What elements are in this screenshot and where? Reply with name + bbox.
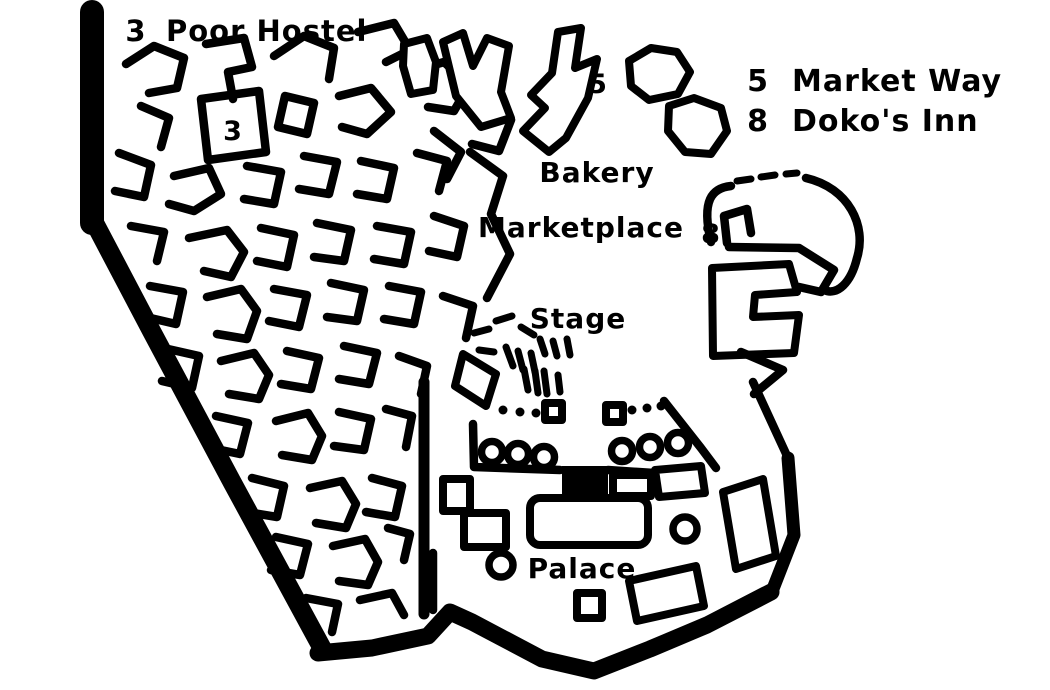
north-buildings: [403, 28, 727, 154]
maze-district: [115, 23, 511, 632]
label-marketplace: Marketplace: [478, 211, 684, 244]
palace-gate: [562, 466, 608, 495]
legend-dokos-inn: 8 Doko's Inn: [747, 104, 979, 139]
label-stage: Stage: [530, 302, 626, 335]
marker-market-way: 5: [588, 69, 608, 100]
legend-poor-hostel: 3 Poor Hostel: [125, 14, 367, 48]
palace-hall: [530, 498, 648, 545]
legend-market-way: 5 Market Way: [747, 64, 1002, 99]
marker-poor-hostel: 3: [223, 116, 243, 147]
dokos-inn-building: [707, 173, 859, 356]
legend-dokos-inn-num: 8: [747, 104, 769, 139]
city-map-canvas: 3 Poor Hostel 5 Market Way 8 Doko's Inn …: [0, 0, 1050, 690]
city-map-page: 3 Poor Hostel 5 Market Way 8 Doko's Inn …: [0, 0, 1050, 690]
label-palace: Palace: [528, 552, 637, 585]
legend-market-way-num: 5: [747, 64, 769, 99]
label-bakery: Bakery: [539, 156, 654, 189]
stage-platform: [455, 354, 496, 406]
legend-market-way-label: Market Way: [792, 64, 1002, 99]
legend-dokos-inn-label: Doko's Inn: [792, 104, 979, 139]
marker-dokos-inn: 8: [701, 219, 721, 250]
legend-poor-hostel-num: 3: [125, 14, 146, 48]
colonnade: [482, 402, 689, 468]
legend-poor-hostel-label: Poor Hostel: [166, 14, 367, 48]
